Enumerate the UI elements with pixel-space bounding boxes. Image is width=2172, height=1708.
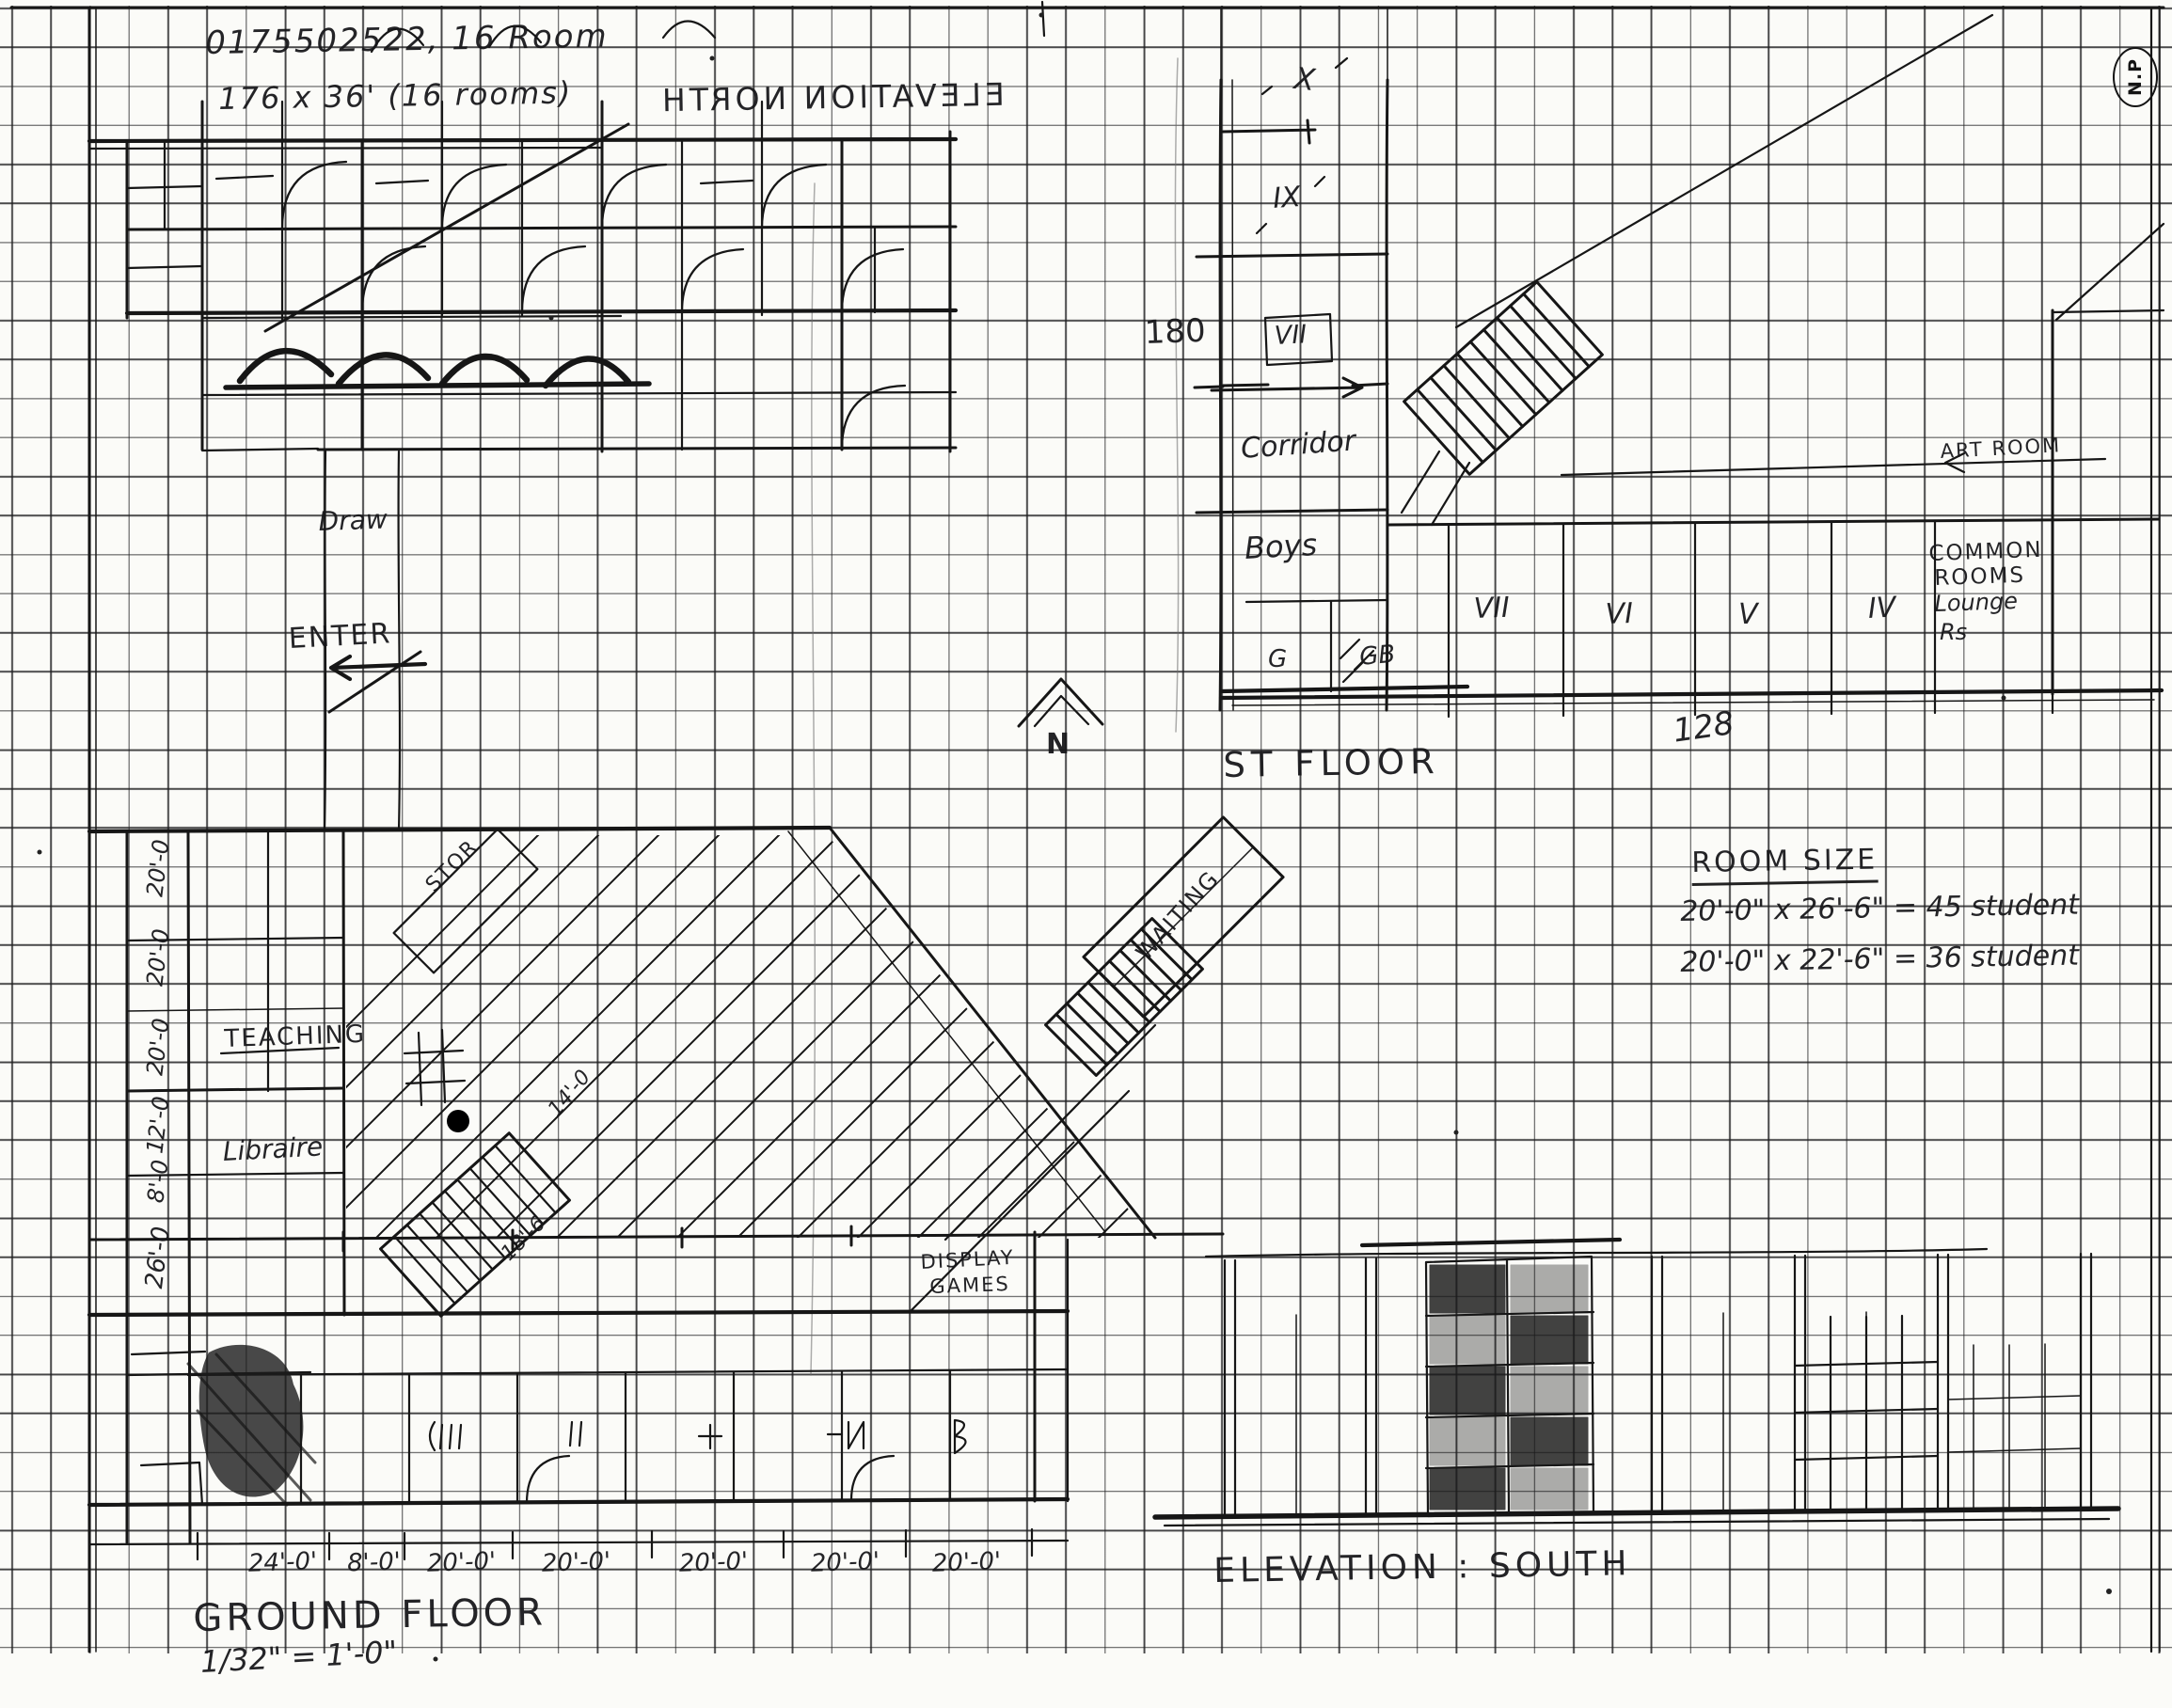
common-room-line2: ROOMS [1934,563,2025,591]
bottom-dim-3: 20'-0' [533,1547,619,1578]
south-elevation-title: ELEVATION : SOUTH [1213,1544,1632,1590]
teaching-label: TEACHING [224,1020,367,1053]
room-size-line1: 20'-0" x 26'-6" = 45 student [1680,889,2079,928]
enter-label: ENTER [288,617,392,656]
room-size-heading: ROOM SIZE [1691,844,1879,886]
room-vii-wing-label: VII [1274,320,1308,351]
north-arrow-label: N [1046,728,1070,761]
ground-floor-title: GROUND FLOOR [193,1590,547,1640]
room-size-line2: 20'-0" x 22'-6" = 36 student [1680,940,2079,979]
room-vii-label: VII [1473,592,1510,625]
bottom-dim-5: 20'-0' [802,1547,888,1578]
bottom-dim-1: 8'-0' [331,1547,417,1578]
reference-number: 0175502522, 16 Room [205,18,609,62]
room-x-label: X [1292,60,1317,98]
bottom-dim-0: 24'-0' [240,1547,325,1578]
room-gb-label: GB [1358,640,1396,672]
room-ix-label: IX [1272,181,1302,215]
common-room-line4: Rs [1940,619,1967,645]
first-floor-title: ST FLOOR [1223,741,1440,785]
draw-room-label: Draw [318,503,388,537]
bottom-dim-4: 20'-0' [671,1547,756,1578]
library-label: Libraire [222,1131,324,1167]
initials-badge: N.P [2113,47,2158,107]
display-games-line2: GAMES [929,1273,1010,1298]
dimensions-note: 176 x 36' (16 rooms) [218,74,573,117]
room-g-label: G [1268,645,1287,673]
initials-text: N.P [2125,58,2146,96]
room-v-label: V [1738,598,1758,631]
boys-room-label: Boys [1244,527,1318,566]
room-vi-label: VI [1605,597,1634,631]
bottom-dim-6: 20'-0' [924,1547,1009,1578]
dim-180-label: 180 [1144,312,1206,352]
elevation-north-mirrored-title: ELEVATION NORTH [658,76,1005,119]
room-iv-label: IV [1867,591,1896,625]
bottom-dim-2: 20'-0' [419,1547,504,1578]
common-room-line3: Lounge [1934,588,2018,617]
common-room-line1: COMMON [1928,538,2043,566]
graph-paper-sheet: 0175502522, 16 Room 176 x 36' (16 rooms)… [0,0,2172,1708]
